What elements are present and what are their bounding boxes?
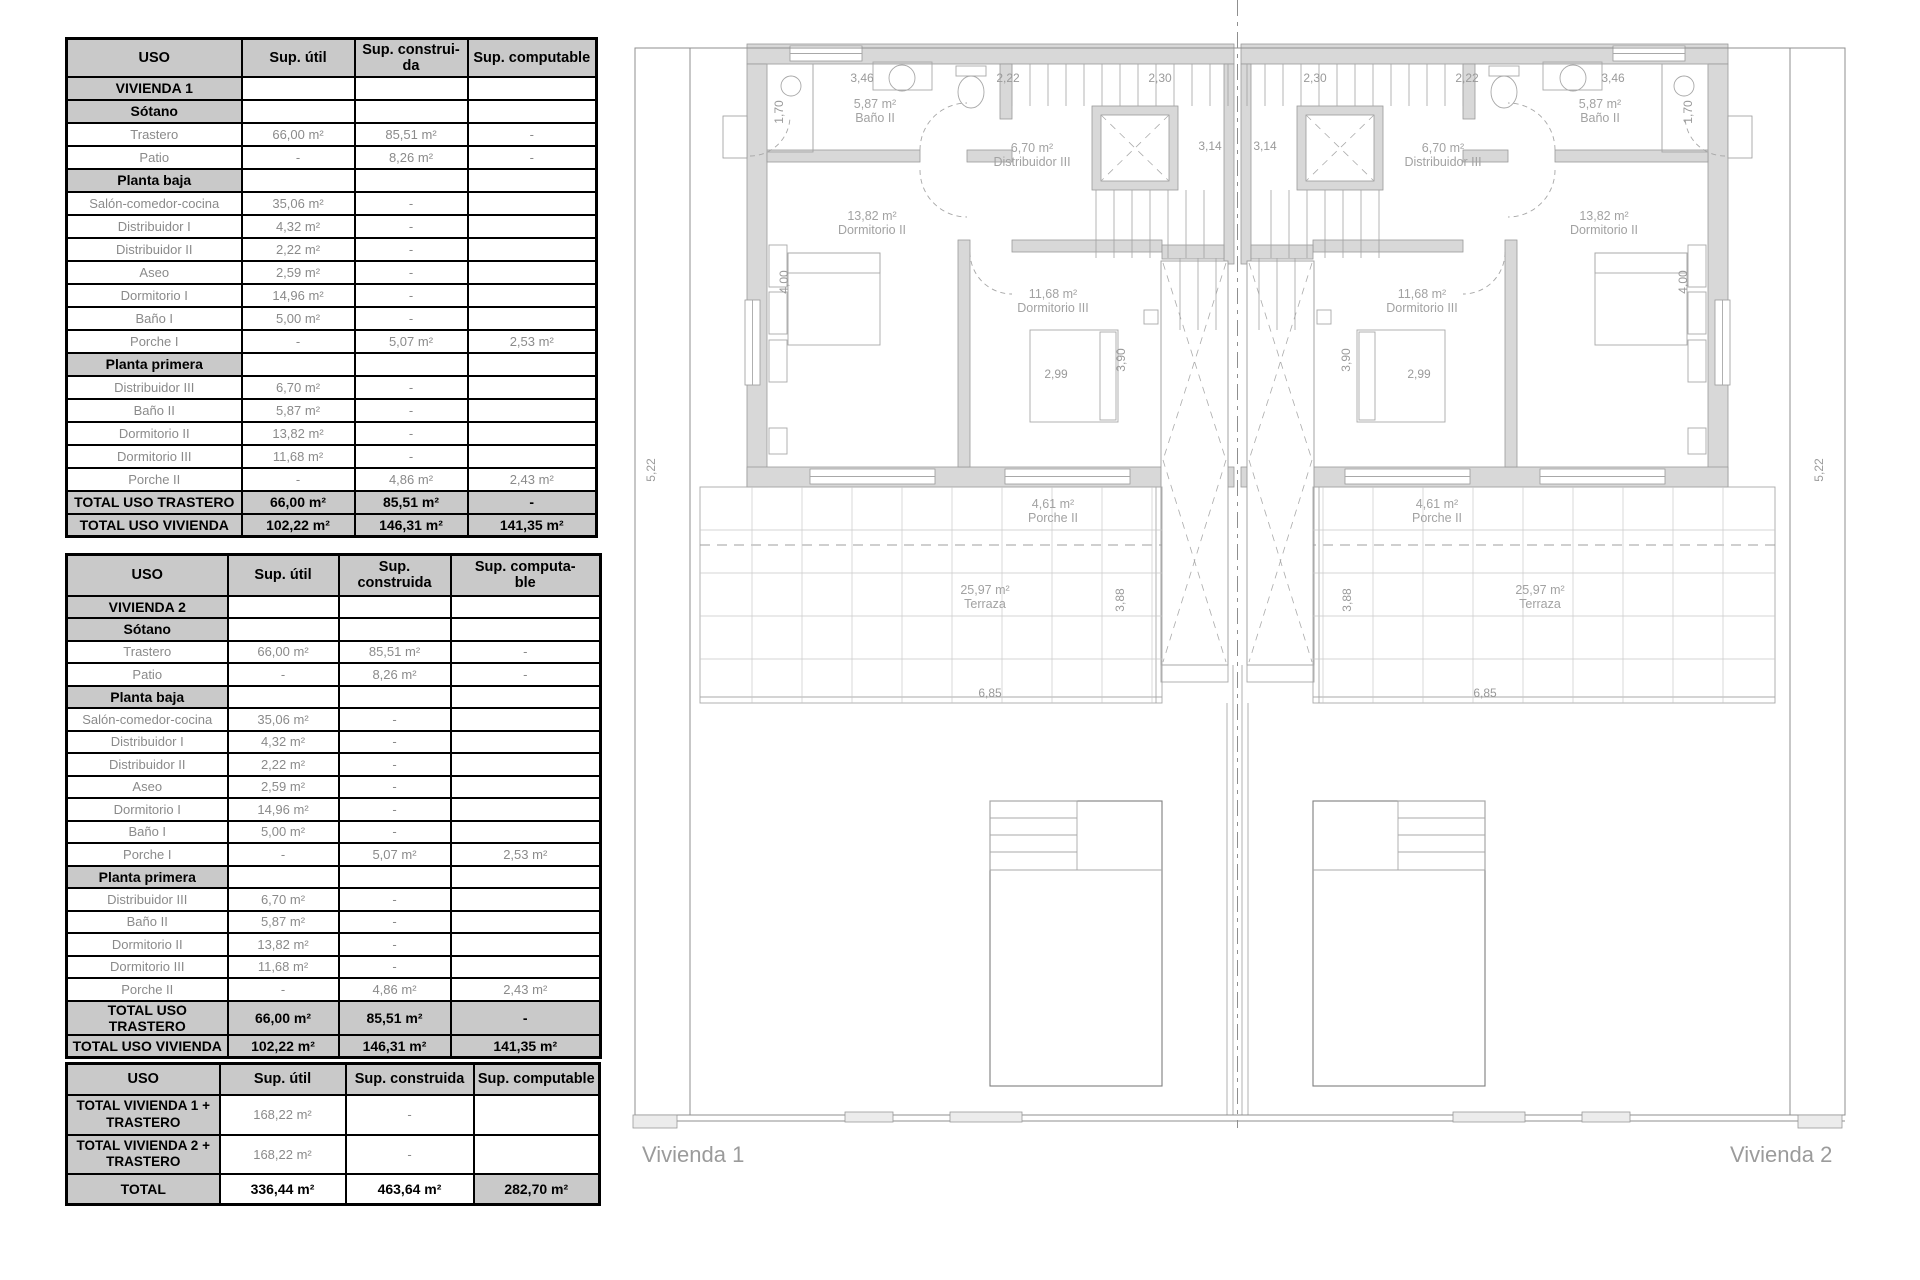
table-cell: 8,26 m² xyxy=(339,663,451,686)
room-name-label: Distribuidor III xyxy=(993,155,1070,169)
table-cell: 5,87 m² xyxy=(242,399,355,422)
table-cell: 336,44 m² xyxy=(220,1174,346,1205)
wardrobe xyxy=(769,292,787,334)
sink xyxy=(889,65,915,91)
table-row: Planta primera xyxy=(67,866,601,889)
room-area-label: 13,82 m² xyxy=(847,209,896,223)
column-header: Sup. útil xyxy=(242,39,355,77)
table-cell: Distribuidor I xyxy=(67,215,242,238)
room-area-label: 11,68 m² xyxy=(1029,287,1077,301)
table-cell: - xyxy=(468,123,597,146)
dimension-label: 3,88 xyxy=(1340,588,1354,612)
table-cell: Salón-comedor-cocina xyxy=(67,192,242,215)
table-row: Distribuidor II2,22 m²- xyxy=(67,238,597,261)
table-cell: 13,82 m² xyxy=(228,933,339,956)
table-row: Porche I-5,07 m²2,53 m² xyxy=(67,843,601,866)
column-header: USO xyxy=(67,555,228,596)
table-row: Aseo2,59 m²- xyxy=(67,261,597,284)
table-cell: Porche II xyxy=(67,978,228,1001)
table-cell: - xyxy=(228,663,339,686)
table-cell xyxy=(451,596,601,619)
table-cell: - xyxy=(339,753,451,776)
table-cell: 2,59 m² xyxy=(228,776,339,799)
table-cell: Planta primera xyxy=(67,353,242,376)
table-cell: - xyxy=(339,708,451,731)
table-cell xyxy=(242,353,355,376)
table-cell: - xyxy=(355,445,468,468)
column-header: Sup. construida xyxy=(339,555,451,596)
table-row: Porche II-4,86 m²2,43 m² xyxy=(67,978,601,1001)
table-cell: TOTAL USO TRASTERO xyxy=(67,491,242,514)
table-cell xyxy=(451,731,601,754)
column-header: Sup. computa- ble xyxy=(451,555,601,596)
table-cell: 66,00 m² xyxy=(242,491,355,514)
table-cell: 13,82 m² xyxy=(242,422,355,445)
door-arc xyxy=(920,103,967,150)
dimension-label: 3,46 xyxy=(850,71,874,85)
table-cell: 11,68 m² xyxy=(228,956,339,979)
dimension-label: 3,14 xyxy=(1198,139,1222,153)
room-name-label: Baño II xyxy=(1580,111,1620,125)
table-cell: - xyxy=(451,641,601,664)
table-cell: - xyxy=(346,1135,474,1174)
table-cell: 4,32 m² xyxy=(242,215,355,238)
table-cell xyxy=(355,353,468,376)
table-cell xyxy=(339,686,451,709)
table-cell xyxy=(242,169,355,192)
table-cell: VIVIENDA 1 xyxy=(67,77,242,100)
table-cell xyxy=(468,215,597,238)
table-cell: - xyxy=(451,1001,601,1035)
table-row: Porche I-5,07 m²2,53 m² xyxy=(67,330,597,353)
table-row: Planta primera xyxy=(67,353,597,376)
table-cell: - xyxy=(468,146,597,169)
table-cell: Planta baja xyxy=(67,169,242,192)
table-cell: 282,70 m² xyxy=(474,1174,600,1205)
column-header: Sup. construi- da xyxy=(355,39,468,77)
table-cell: TOTAL USO TRASTERO xyxy=(67,1001,228,1035)
table-cell xyxy=(468,445,597,468)
unit-left xyxy=(700,44,1234,1115)
unit-right xyxy=(1241,44,1775,1115)
room-name-label: Porche II xyxy=(1412,511,1462,525)
table-cell: TOTAL VIVIENDA 1 + TRASTERO xyxy=(67,1095,220,1135)
table-cell: 146,31 m² xyxy=(355,514,468,537)
table-row: Distribuidor I4,32 m²- xyxy=(67,731,601,754)
toilet xyxy=(958,76,984,108)
bed xyxy=(1030,330,1118,422)
table-row: Planta baja xyxy=(67,686,601,709)
table-cell: 35,06 m² xyxy=(242,192,355,215)
table-cell: 5,07 m² xyxy=(339,843,451,866)
table-row: Patio-8,26 m²- xyxy=(67,146,597,169)
table-cell: 4,32 m² xyxy=(228,731,339,754)
table-cell xyxy=(339,618,451,641)
table-row: Trastero66,00 m²85,51 m²- xyxy=(67,641,601,664)
wall xyxy=(747,64,767,487)
table-cell: Distribuidor I xyxy=(67,731,228,754)
table-cell: - xyxy=(355,399,468,422)
table-cell: - xyxy=(355,192,468,215)
table-row: TOTAL VIVIENDA 1 + TRASTERO168,22 m²- xyxy=(67,1095,600,1135)
table-row: Planta baja xyxy=(67,169,597,192)
header-row: USOSup. útilSup. construidaSup. computa-… xyxy=(67,555,601,596)
table-cell xyxy=(451,753,601,776)
bed-pillow xyxy=(788,253,880,273)
table-cell: Baño I xyxy=(67,307,242,330)
table-row: TOTAL VIVIENDA 2 + TRASTERO168,22 m²- xyxy=(67,1135,600,1174)
table-cell: - xyxy=(339,798,451,821)
property-boundary xyxy=(633,48,1845,1128)
table-cell: - xyxy=(468,491,597,514)
dimension-label: 1,70 xyxy=(1681,100,1695,124)
table-cell: 2,53 m² xyxy=(468,330,597,353)
table-cell xyxy=(242,77,355,100)
door-arc xyxy=(970,252,1012,294)
table-cell xyxy=(474,1135,600,1174)
table-cell: 4,86 m² xyxy=(339,978,451,1001)
table-cell: - xyxy=(242,330,355,353)
table-cell xyxy=(451,798,601,821)
header-row: USOSup. útilSup. construidaSup. computab… xyxy=(67,1064,600,1095)
table-cell: Distribuidor II xyxy=(67,753,228,776)
dimension-label: 3,14 xyxy=(1253,139,1277,153)
dimension-label: 1,70 xyxy=(772,100,786,124)
table-cell: 5,07 m² xyxy=(355,330,468,353)
table-cell xyxy=(468,261,597,284)
vanity xyxy=(873,62,932,90)
table-cell: 4,86 m² xyxy=(355,468,468,491)
table-cell: TOTAL VIVIENDA 2 + TRASTERO xyxy=(67,1135,220,1174)
table-cell: 66,00 m² xyxy=(242,123,355,146)
dimension-label: 2,22 xyxy=(996,71,1020,85)
table-cell: Dormitorio III xyxy=(67,445,242,468)
room-area-label: 4,61 m² xyxy=(1032,497,1074,511)
plan-labels: 5,87 m²Baño II6,70 m²Distribuidor III13,… xyxy=(644,71,1826,700)
vivienda-1-caption: Vivienda 1 xyxy=(642,1142,744,1168)
table-cell: 5,00 m² xyxy=(242,307,355,330)
table-cell: Porche II xyxy=(67,468,242,491)
table-row: Distribuidor III6,70 m²- xyxy=(67,888,601,911)
table-cell: - xyxy=(355,261,468,284)
table-row: Dormitorio I14,96 m²- xyxy=(67,284,597,307)
room-name-label: Dormitorio II xyxy=(838,223,906,237)
dimension-label: 3,88 xyxy=(1113,588,1127,612)
table-cell: - xyxy=(339,956,451,979)
table-row: Sótano xyxy=(67,618,601,641)
table-cell: - xyxy=(339,776,451,799)
column-header: Sup. construida xyxy=(346,1064,474,1095)
room-name-label: Distribuidor III xyxy=(1404,155,1481,169)
table-cell: 2,59 m² xyxy=(242,261,355,284)
table-cell: Planta baja xyxy=(67,686,228,709)
table-cell: - xyxy=(346,1095,474,1135)
table-row: Aseo2,59 m²- xyxy=(67,776,601,799)
table-cell xyxy=(451,933,601,956)
dimension-label: 3,90 xyxy=(1114,348,1128,372)
room-name-label: Dormitorio III xyxy=(1386,301,1458,315)
room-area-label: 5,87 m² xyxy=(854,97,896,111)
table-cell: 102,22 m² xyxy=(242,514,355,537)
table-cell: Dormitorio II xyxy=(67,422,242,445)
table-cell xyxy=(468,353,597,376)
table-cell: 102,22 m² xyxy=(228,1035,339,1058)
table-cell: Distribuidor II xyxy=(67,238,242,261)
table-cell: - xyxy=(355,422,468,445)
bed-pillow xyxy=(1100,332,1116,420)
table-cell xyxy=(468,284,597,307)
room-area-label: 4,61 m² xyxy=(1416,497,1458,511)
column-header: Sup. útil xyxy=(228,555,339,596)
table-cell: 8,26 m² xyxy=(355,146,468,169)
table-cell: Planta primera xyxy=(67,866,228,889)
dimension-label: 2,30 xyxy=(1148,71,1172,85)
table-cell: 2,53 m² xyxy=(451,843,601,866)
table-cell xyxy=(451,618,601,641)
table-cell xyxy=(468,169,597,192)
table-cell: 35,06 m² xyxy=(228,708,339,731)
dimension-label: 2,99 xyxy=(1407,367,1431,381)
table-cell: - xyxy=(339,821,451,844)
table-row: Dormitorio III11,68 m²- xyxy=(67,956,601,979)
room-area-label: 13,82 m² xyxy=(1579,209,1628,223)
table-cell xyxy=(339,596,451,619)
table-row: Baño II5,87 m²- xyxy=(67,399,597,422)
table-cell: - xyxy=(242,468,355,491)
light-well xyxy=(1161,261,1228,665)
table-cell: Patio xyxy=(67,146,242,169)
table-cell: - xyxy=(339,933,451,956)
table-row: VIVIENDA 1 xyxy=(67,77,597,100)
table-cell xyxy=(451,686,601,709)
dimension-label: 6,85 xyxy=(978,686,1002,700)
dimension-label: 4,00 xyxy=(1676,270,1690,294)
table-cell xyxy=(451,911,601,934)
table-cell: Dormitorio II xyxy=(67,933,228,956)
room-area-label: 6,70 m² xyxy=(1011,141,1053,155)
table-cell xyxy=(228,596,339,619)
wardrobe xyxy=(769,340,787,382)
dimension-label: 4,00 xyxy=(777,270,791,294)
table-cell xyxy=(451,708,601,731)
table-row: Salón-comedor-cocina35,06 m²- xyxy=(67,708,601,731)
room-name-label: Terraza xyxy=(964,597,1006,611)
table-cell: 6,70 m² xyxy=(242,376,355,399)
table-cell: Aseo xyxy=(67,261,242,284)
column-header: USO xyxy=(67,1064,220,1095)
table-cell: Distribuidor III xyxy=(67,888,228,911)
table-row: Baño II5,87 m²- xyxy=(67,911,601,934)
table-row: Dormitorio II13,82 m²- xyxy=(67,933,601,956)
table-cell xyxy=(468,77,597,100)
table-row: Trastero66,00 m²85,51 m²- xyxy=(67,123,597,146)
table-cell: - xyxy=(355,215,468,238)
column-header: Sup. útil xyxy=(220,1064,346,1095)
dimension-label: 2,22 xyxy=(1455,71,1479,85)
table-row: VIVIENDA 2 xyxy=(67,596,601,619)
table-cell: Trastero xyxy=(67,123,242,146)
table-cell: - xyxy=(355,376,468,399)
table-cell: TOTAL USO VIVIENDA xyxy=(67,1035,228,1058)
table-cell xyxy=(451,866,601,889)
area-table-1: USOSup. útilSup. construi- daSup. comput… xyxy=(65,37,598,538)
table-cell xyxy=(468,307,597,330)
table-row: TOTAL USO TRASTERO66,00 m²85,51 m²- xyxy=(67,491,597,514)
dimension-label: 2,99 xyxy=(1044,367,1068,381)
table-cell xyxy=(228,686,339,709)
table-cell: Aseo xyxy=(67,776,228,799)
dimension-label: 6,85 xyxy=(1473,686,1497,700)
table-cell: 85,51 m² xyxy=(355,491,468,514)
room-area-label: 25,97 m² xyxy=(960,583,1009,597)
table-cell: 2,43 m² xyxy=(468,468,597,491)
wall xyxy=(1224,64,1234,264)
room-name-label: Baño II xyxy=(855,111,895,125)
table-row: Dormitorio I14,96 m²- xyxy=(67,798,601,821)
light-well-base xyxy=(1161,665,1228,682)
table-cell xyxy=(451,821,601,844)
table-cell xyxy=(468,238,597,261)
table-cell: 5,87 m² xyxy=(228,911,339,934)
window-sill xyxy=(1162,245,1224,259)
table-cell: Baño II xyxy=(67,911,228,934)
table-row: Distribuidor I4,32 m²- xyxy=(67,215,597,238)
table-row: Baño I5,00 m²- xyxy=(67,307,597,330)
table-cell xyxy=(468,192,597,215)
table-cell: 14,96 m² xyxy=(228,798,339,821)
table-cell xyxy=(468,422,597,445)
table-cell xyxy=(474,1095,600,1135)
toilet-tank xyxy=(956,66,986,76)
wardrobe xyxy=(769,428,787,454)
table-cell: 85,51 m² xyxy=(339,1001,451,1035)
header-row: USOSup. útilSup. construi- daSup. comput… xyxy=(67,39,597,77)
room-area-label: 5,87 m² xyxy=(1579,97,1621,111)
table-cell: TOTAL USO VIVIENDA xyxy=(67,514,242,537)
table-cell xyxy=(451,776,601,799)
balcony xyxy=(723,116,747,158)
area-table-2: USOSup. útilSup. construidaSup. computa-… xyxy=(65,553,602,1059)
table-cell: TOTAL xyxy=(67,1174,220,1205)
table-cell: 6,70 m² xyxy=(228,888,339,911)
room-area-label: 11,68 m² xyxy=(1398,287,1446,301)
table-cell: 85,51 m² xyxy=(339,641,451,664)
table-row: TOTAL USO VIVIENDA102,22 m²146,31 m²141,… xyxy=(67,514,597,537)
terrace xyxy=(700,487,1162,703)
table-cell: 141,35 m² xyxy=(451,1035,601,1058)
table-cell xyxy=(339,866,451,889)
wall xyxy=(958,240,970,467)
table-cell: Dormitorio III xyxy=(67,956,228,979)
area-table-3: USOSup. útilSup. construidaSup. computab… xyxy=(65,1062,601,1206)
table-cell: Dormitorio I xyxy=(67,798,228,821)
table-row: Porche II-4,86 m²2,43 m² xyxy=(67,468,597,491)
table-cell: - xyxy=(355,238,468,261)
table-cell xyxy=(468,399,597,422)
dimension-label: 3,90 xyxy=(1339,348,1353,372)
door-arc xyxy=(920,170,967,217)
table-cell: 168,22 m² xyxy=(220,1135,346,1174)
nightstand xyxy=(1144,310,1158,324)
table-cell: 463,64 m² xyxy=(346,1174,474,1205)
table-cell: 168,22 m² xyxy=(220,1095,346,1135)
table-row: Patio-8,26 m²- xyxy=(67,663,601,686)
table-cell xyxy=(468,100,597,123)
table-cell: Sótano xyxy=(67,100,242,123)
table-cell xyxy=(228,618,339,641)
room-name-label: Dormitorio III xyxy=(1017,301,1089,315)
table-cell: 2,43 m² xyxy=(451,978,601,1001)
table-row: Salón-comedor-cocina35,06 m²- xyxy=(67,192,597,215)
table-cell: - xyxy=(451,663,601,686)
table-cell: 146,31 m² xyxy=(339,1035,451,1058)
table-cell: - xyxy=(339,731,451,754)
table-row: TOTAL USO TRASTERO66,00 m²85,51 m²- xyxy=(67,1001,601,1035)
table-cell: Distribuidor III xyxy=(67,376,242,399)
dimension-label: 3,46 xyxy=(1601,71,1625,85)
table-cell: - xyxy=(355,307,468,330)
table-cell xyxy=(355,100,468,123)
room-area-label: 25,97 m² xyxy=(1515,583,1564,597)
table-row: TOTAL336,44 m²463,64 m²282,70 m² xyxy=(67,1174,600,1205)
table-row: Sótano xyxy=(67,100,597,123)
table-cell: Salón-comedor-cocina xyxy=(67,708,228,731)
table-cell: Porche I xyxy=(67,843,228,866)
table-cell: 66,00 m² xyxy=(228,641,339,664)
table-cell: Porche I xyxy=(67,330,242,353)
table-cell: 141,35 m² xyxy=(468,514,597,537)
dimension-label: 5,22 xyxy=(644,458,658,482)
wall xyxy=(1012,240,1162,252)
table-cell: - xyxy=(228,978,339,1001)
table-row: Distribuidor II2,22 m²- xyxy=(67,753,601,776)
table-row: TOTAL USO VIVIENDA102,22 m²146,31 m²141,… xyxy=(67,1035,601,1058)
table-cell: - xyxy=(228,843,339,866)
dimension-label: 5,22 xyxy=(1812,458,1826,482)
table-cell: 85,51 m² xyxy=(355,123,468,146)
table-cell: - xyxy=(355,284,468,307)
table-row: Dormitorio II13,82 m²- xyxy=(67,422,597,445)
table-cell: Sótano xyxy=(67,618,228,641)
table-cell: 5,00 m² xyxy=(228,821,339,844)
table-cell xyxy=(355,77,468,100)
table-cell: Patio xyxy=(67,663,228,686)
room-name-label: Terraza xyxy=(1519,597,1561,611)
table-cell: Baño II xyxy=(67,399,242,422)
bed xyxy=(788,253,880,345)
room-area-label: 6,70 m² xyxy=(1422,141,1464,155)
table-cell xyxy=(468,376,597,399)
room-name-label: Dormitorio II xyxy=(1570,223,1638,237)
table-row: Dormitorio III11,68 m²- xyxy=(67,445,597,468)
table-cell: 14,96 m² xyxy=(242,284,355,307)
column-header: Sup. computable xyxy=(468,39,597,77)
table-cell: Dormitorio I xyxy=(67,284,242,307)
room-name-label: Porche II xyxy=(1028,511,1078,525)
table-cell: 2,22 m² xyxy=(228,753,339,776)
table-cell xyxy=(451,888,601,911)
table-row: Distribuidor III6,70 m²- xyxy=(67,376,597,399)
dimension-label: 2,30 xyxy=(1303,71,1327,85)
table-cell: 2,22 m² xyxy=(242,238,355,261)
table-cell: 11,68 m² xyxy=(242,445,355,468)
table-cell xyxy=(242,100,355,123)
table-row: Baño I5,00 m²- xyxy=(67,821,601,844)
table-cell: - xyxy=(339,911,451,934)
shower-drain-icon xyxy=(781,76,801,96)
table-cell: 66,00 m² xyxy=(228,1001,339,1035)
table-cell xyxy=(451,956,601,979)
